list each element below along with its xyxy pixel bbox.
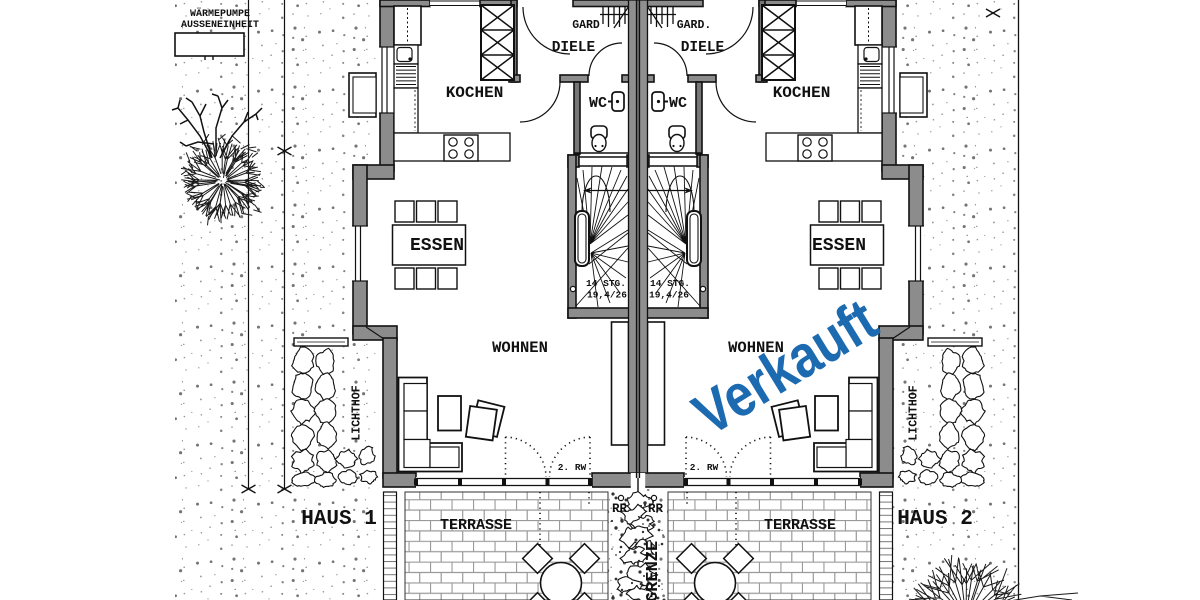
svg-text:2. RW: 2. RW bbox=[690, 462, 719, 473]
svg-text:LICHTHOF: LICHTHOF bbox=[908, 385, 921, 440]
svg-text:KOCHEN: KOCHEN bbox=[446, 84, 504, 102]
svg-text:WC: WC bbox=[669, 95, 687, 112]
svg-text:14 STG.: 14 STG. bbox=[586, 278, 626, 289]
svg-text:WC: WC bbox=[589, 95, 607, 112]
svg-text:HAUS 1: HAUS 1 bbox=[301, 508, 377, 531]
svg-text:RR: RR bbox=[612, 502, 628, 516]
svg-text:HAUS 2: HAUS 2 bbox=[897, 508, 973, 531]
svg-text:TERRASSE: TERRASSE bbox=[764, 517, 836, 534]
svg-text:TERRASSE: TERRASSE bbox=[440, 517, 512, 534]
svg-text:GARD.: GARD. bbox=[677, 19, 712, 32]
svg-text:DIELE: DIELE bbox=[552, 40, 596, 56]
svg-text:2. RW: 2. RW bbox=[558, 462, 587, 473]
svg-text:LICHTHOF: LICHTHOF bbox=[351, 385, 364, 440]
svg-text:DIELE: DIELE bbox=[681, 40, 725, 56]
svg-text:WOHNEN: WOHNEN bbox=[492, 339, 548, 357]
svg-text:19,4/26: 19,4/26 bbox=[587, 290, 627, 301]
svg-text:ESSEN: ESSEN bbox=[410, 236, 464, 256]
svg-text:KOCHEN: KOCHEN bbox=[773, 84, 831, 102]
svg-text:19,4/26: 19,4/26 bbox=[649, 290, 689, 301]
svg-text:GRENZE: GRENZE bbox=[644, 541, 663, 600]
svg-text:14 STG.: 14 STG. bbox=[650, 278, 690, 289]
svg-text:ESSEN: ESSEN bbox=[812, 236, 866, 256]
svg-text:RR: RR bbox=[648, 502, 664, 516]
svg-text:WÄRMEPUMPE: WÄRMEPUMPE bbox=[190, 7, 250, 20]
svg-text:GARD: GARD bbox=[572, 19, 600, 32]
svg-text:AUSSENEINHEIT: AUSSENEINHEIT bbox=[181, 20, 259, 31]
